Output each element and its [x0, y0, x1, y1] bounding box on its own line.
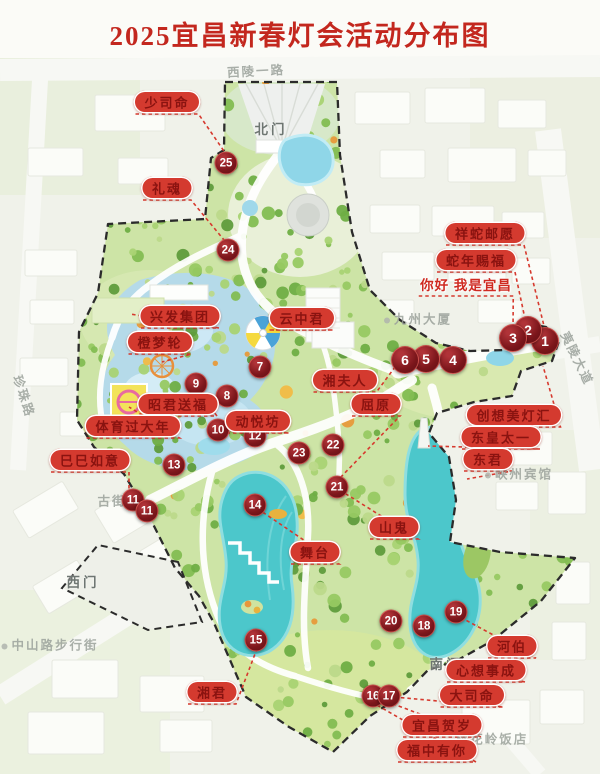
map-marker-3[interactable]: 3: [499, 324, 527, 352]
attraction-label[interactable]: 昭君送福: [137, 393, 219, 416]
map-marker-17[interactable]: 17: [378, 685, 401, 708]
attraction-label[interactable]: 心想事成: [445, 659, 527, 682]
map-marker-14[interactable]: 14: [244, 494, 267, 517]
poi-dot: [1, 643, 7, 649]
map-marker-13[interactable]: 13: [163, 454, 186, 477]
map-marker-20[interactable]: 20: [380, 610, 403, 633]
street-label: 西陵一路: [227, 59, 286, 81]
attraction-label[interactable]: 福中有你: [396, 739, 478, 762]
street-label: 九州大厦: [384, 309, 452, 328]
map-marker-7[interactable]: 7: [249, 356, 272, 379]
map-marker-21[interactable]: 21: [326, 476, 349, 499]
attraction-label[interactable]: 湘君: [186, 681, 238, 704]
attraction-label[interactable]: 你好 我是宜昌: [420, 274, 512, 294]
poi-dot: [485, 472, 491, 478]
attraction-label[interactable]: 祥蛇邮愿: [444, 222, 526, 245]
festival-map-page: 2025宜昌新春灯会活动分布图 西陵一路夷陵大道珍珠路九州大厦峡州宾馆桃花岭饭店…: [0, 0, 600, 774]
map-marker-18[interactable]: 18: [413, 615, 436, 638]
attraction-label[interactable]: 舞台: [289, 541, 341, 564]
attraction-label[interactable]: 东皇太一: [460, 426, 542, 449]
attraction-label[interactable]: 东君: [462, 448, 514, 471]
attraction-label[interactable]: 云中君: [268, 307, 335, 330]
poi-dot: [384, 317, 390, 323]
attraction-label[interactable]: 礼魂: [141, 177, 193, 200]
map-marker-25[interactable]: 25: [215, 152, 238, 175]
attraction-label[interactable]: 动悦坊: [224, 410, 291, 433]
attraction-label[interactable]: 体育过大年: [84, 415, 181, 438]
map-overlay: 西陵一路夷陵大道珍珠路九州大厦峡州宾馆桃花岭饭店中山路步行街古街北门西门南门12…: [0, 0, 600, 774]
attraction-label[interactable]: 山鬼: [368, 516, 420, 539]
street-label: 珍珠路: [9, 372, 41, 419]
map-marker-24[interactable]: 24: [217, 239, 240, 262]
attraction-label[interactable]: 蛇年赐福: [435, 249, 517, 272]
street-label: 中山路步行街: [1, 635, 98, 654]
street-label: 夷陵大道: [557, 328, 600, 388]
map-marker-19[interactable]: 19: [445, 601, 468, 624]
map-marker-6[interactable]: 6: [391, 346, 419, 374]
map-marker-15[interactable]: 15: [245, 629, 268, 652]
attraction-label[interactable]: 巳巳如意: [49, 449, 131, 472]
map-marker-23[interactable]: 23: [288, 442, 311, 465]
attraction-label[interactable]: 湘夫人: [311, 369, 378, 392]
map-marker-4[interactable]: 4: [439, 346, 467, 374]
attraction-label[interactable]: 大司命: [438, 684, 505, 707]
attraction-label[interactable]: 兴发集团: [139, 305, 221, 328]
attraction-label[interactable]: 少司命: [133, 91, 200, 114]
gate-label: 西门: [67, 571, 100, 591]
map-marker-22[interactable]: 22: [322, 434, 345, 457]
attraction-label[interactable]: 屈原: [350, 393, 402, 416]
attraction-label[interactable]: 河伯: [486, 635, 538, 658]
attraction-label[interactable]: 宜昌贺岁: [401, 714, 483, 737]
attraction-label[interactable]: 橙梦轮: [126, 331, 193, 354]
attraction-label[interactable]: 创想美灯汇: [465, 404, 562, 427]
gate-label: 北门: [255, 118, 288, 138]
map-marker-11[interactable]: 11: [136, 500, 159, 523]
